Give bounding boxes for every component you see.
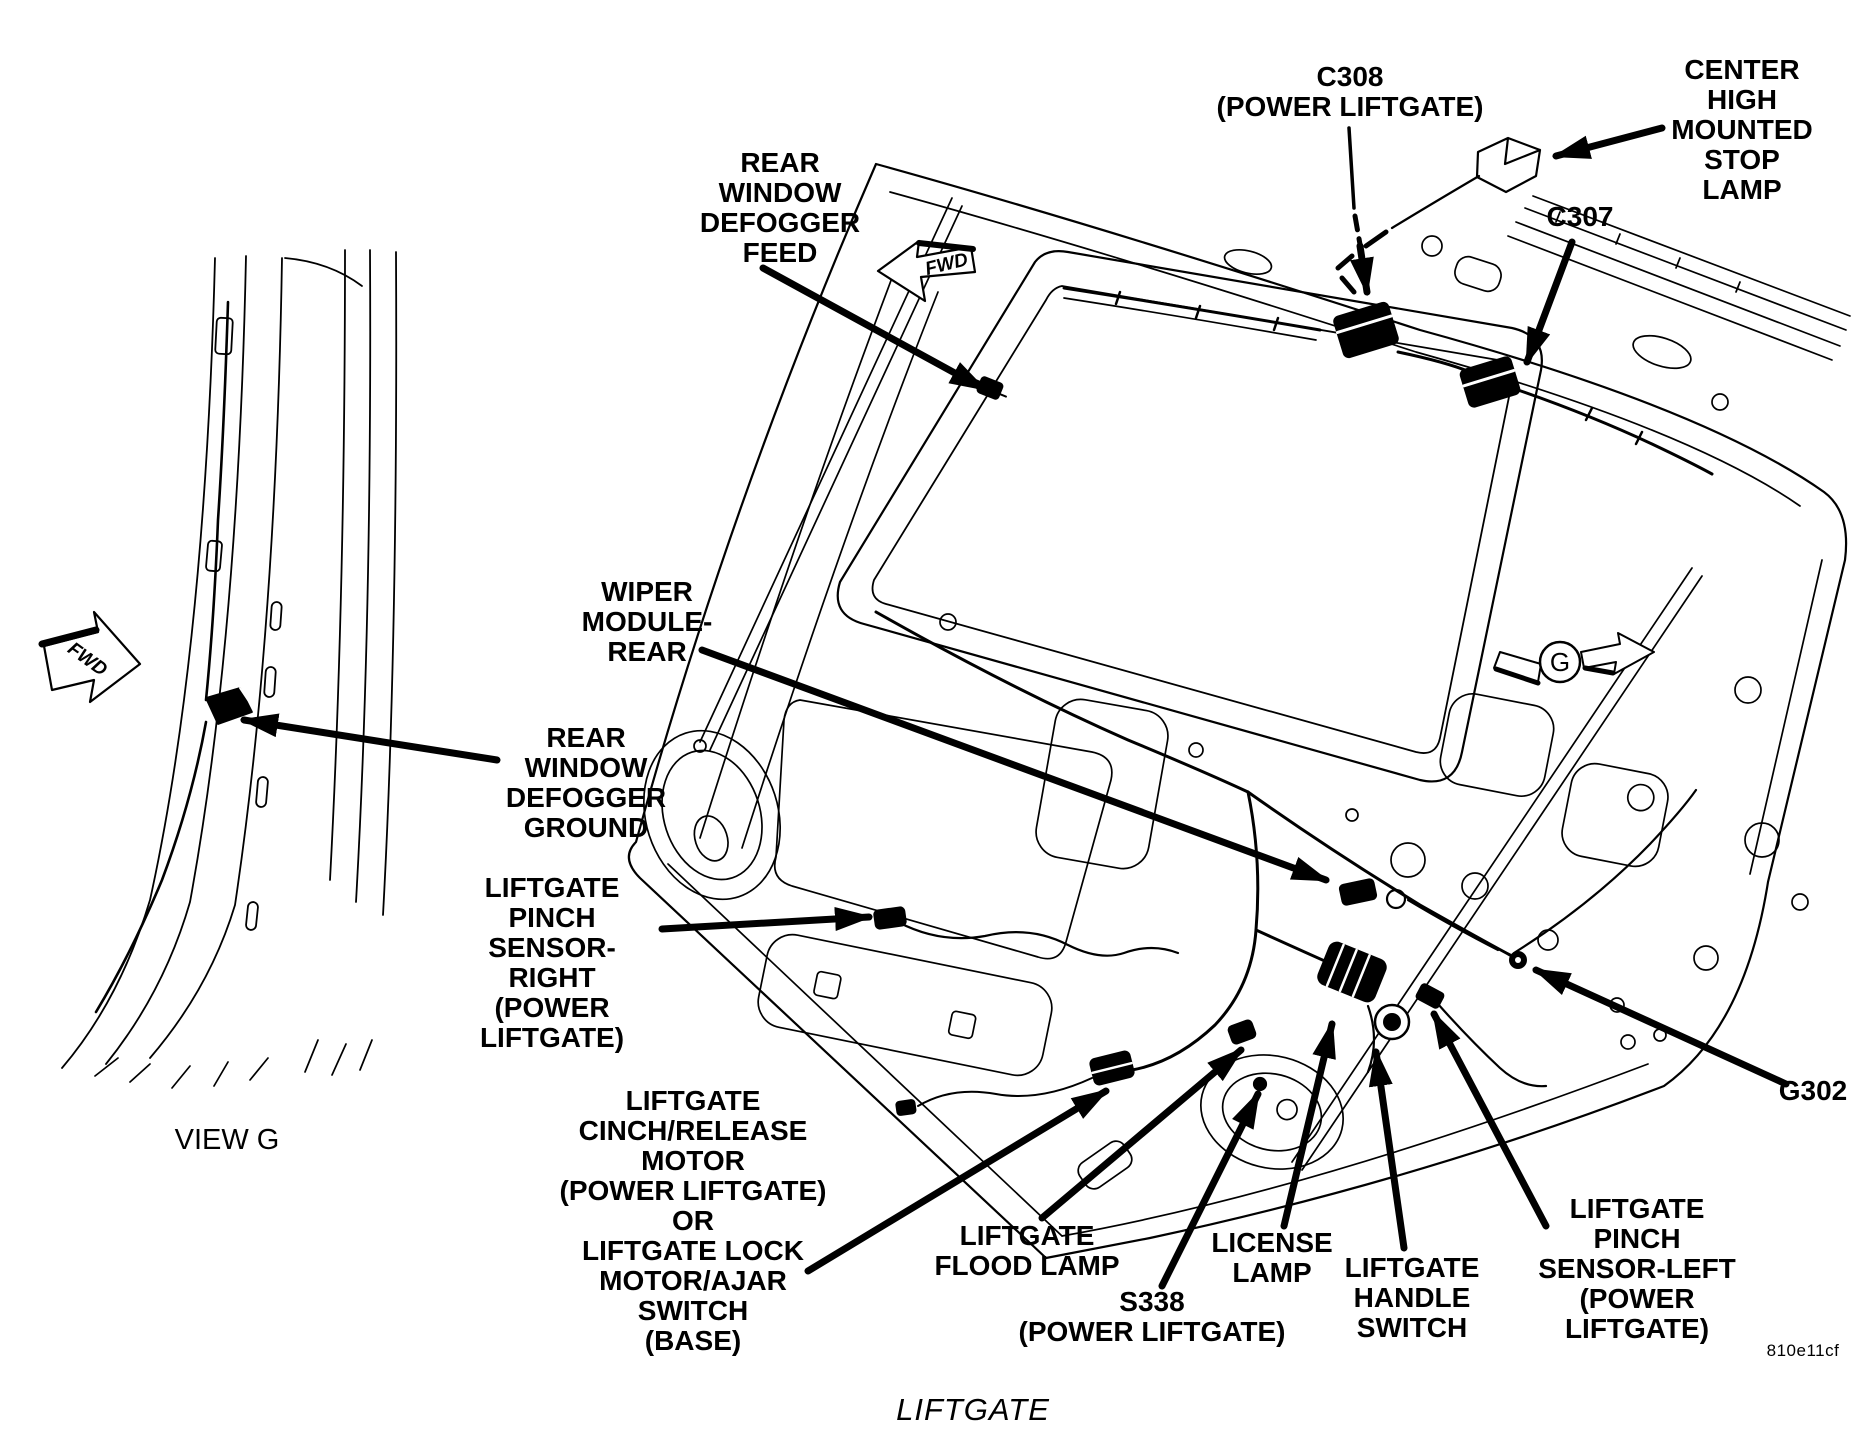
handle-switch-connector: [1375, 1005, 1409, 1039]
s338-splice: [1254, 1078, 1266, 1090]
pinch-sensor-right-connector: [874, 907, 906, 929]
label-g302: G302: [1779, 1076, 1848, 1106]
wiper-module-connector: [1339, 879, 1405, 908]
label-c307: C307: [1547, 202, 1614, 232]
label-liftgate-flood-lamp: LIFTGATE FLOOD LAMP: [934, 1221, 1119, 1281]
panel-cutouts: [623, 236, 1808, 1193]
label-liftgate-pinch-sensor-right: LIFTGATE PINCH SENSOR- RIGHT (POWER LIFT…: [480, 873, 624, 1053]
lock-motor-connector: [896, 1100, 916, 1115]
view-g-caption: VIEW G: [175, 1125, 280, 1155]
label-license-lamp: LICENSE LAMP: [1211, 1228, 1332, 1288]
label-liftgate-handle-switch: LIFTGATE HANDLE SWITCH: [1345, 1253, 1480, 1343]
drawing-code: 810e11cf: [1767, 1336, 1840, 1366]
license-lamp-connector: [1316, 940, 1388, 1003]
leader-chmsl: [1556, 128, 1662, 156]
leader-defogger-feed: [763, 268, 984, 389]
label-center-high-mounted-stop-lamp: CENTER HIGH MOUNTED STOP LAMP: [1671, 55, 1813, 205]
connector-c307: [1460, 356, 1521, 408]
connector-c308: [1333, 302, 1399, 359]
flood-lamp-connector: [1228, 1019, 1257, 1044]
g-marker-letter: G: [1550, 647, 1570, 677]
window-frame: [838, 251, 1542, 781]
cinch-release-motor-connector: [1089, 1051, 1134, 1086]
leader-pinch-right: [662, 917, 869, 929]
label-rear-window-defogger-feed: REAR WINDOW DEFOGGER FEED: [700, 148, 860, 268]
fwd-arrow-inset: FWD: [42, 612, 140, 702]
label-liftgate-cinch-release-motor: LIFTGATE CINCH/RELEASE MOTOR (POWER LIFT…: [560, 1086, 827, 1356]
gas-struts: [694, 198, 1702, 1170]
view-g-marker: G: [1494, 633, 1654, 683]
label-wiper-module-rear: WIPER MODULE- REAR: [582, 577, 713, 667]
label-liftgate-pinch-sensor-left: LIFTGATE PINCH SENSOR-LEFT (POWER LIFTGA…: [1527, 1194, 1748, 1344]
leader-c307: [1527, 242, 1572, 362]
gate-rim-lines: [668, 192, 1822, 1236]
label-c308: C308 (POWER LIFTGATE): [1217, 62, 1484, 122]
leader-defogger-ground: [244, 720, 497, 760]
view-g-inset-drawing: FWD: [42, 250, 396, 1088]
service-manual-page: FWD G FWD: [0, 0, 1858, 1456]
leader-c308-head: [1360, 246, 1367, 292]
leader-arrows: [244, 128, 1786, 1286]
pinch-sensor-left-connector: [1416, 983, 1445, 1008]
harness-bottom: [876, 612, 1696, 1106]
leader-c308-thin: [1349, 128, 1354, 208]
leader-g302: [1536, 970, 1786, 1084]
label-rear-window-defogger-ground: REAR WINDOW DEFOGGER GROUND: [506, 723, 666, 843]
figure-title: LIFTGATE: [896, 1395, 1050, 1425]
chmsl-lamp: [1338, 138, 1540, 292]
fwd-arrow-main: FWD: [878, 241, 975, 301]
label-s338: S338 (POWER LIFTGATE): [1019, 1287, 1286, 1347]
g302-ground-eyelet: [1509, 951, 1527, 969]
